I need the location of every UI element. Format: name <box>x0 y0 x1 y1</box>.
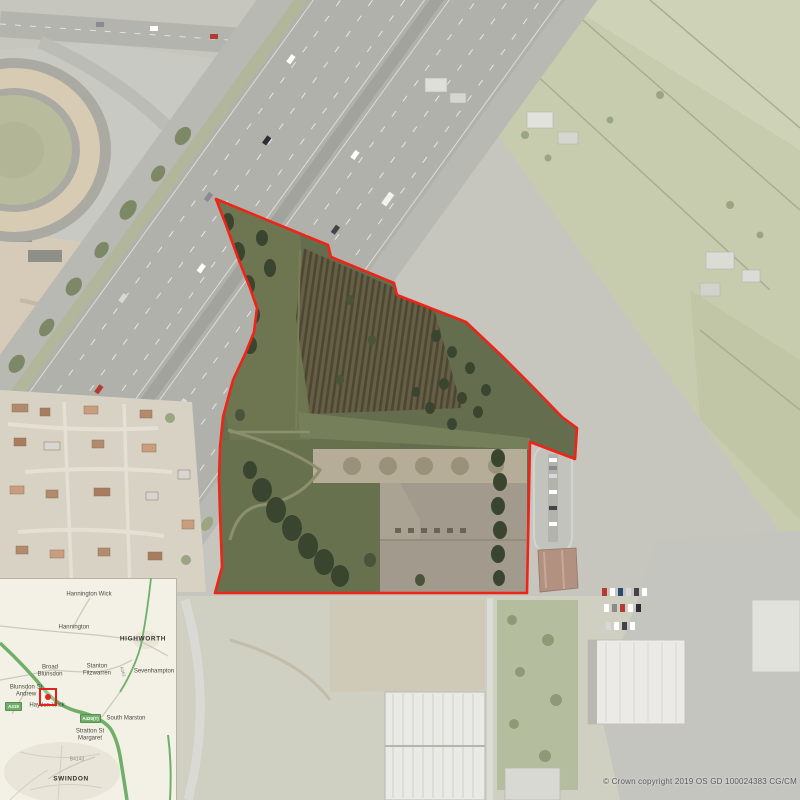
label-stanton-fitzwarren: Stanton Fitzwarren <box>75 663 119 676</box>
marker-dot <box>45 694 51 700</box>
housing-estate <box>0 390 206 592</box>
copyright-text: © Crown copyright 2019 OS GD 100024383 C… <box>603 777 797 786</box>
label-sevenhampton: Sevenhampton <box>124 669 184 676</box>
label-broad-blunsdon: Broad Blunsdon <box>33 664 67 677</box>
hotel-carpark <box>534 444 578 592</box>
label-hannington: Hannington <box>44 625 104 632</box>
site-plan-image: Hannington Wick Hannington HIGHWORTH Bro… <box>0 0 800 800</box>
location-marker <box>39 688 57 706</box>
label-south-marston: South Marston <box>98 716 154 723</box>
label-highworth: HIGHWORTH <box>108 635 178 642</box>
badge-a419: A419 <box>5 702 22 711</box>
label-hannington-wick: Hannington Wick <box>65 592 113 599</box>
label-b4143: B4143 <box>62 757 92 763</box>
label-swindon: SWINDON <box>41 775 101 782</box>
label-stratton-st-margaret: Stratton St Margaret <box>70 728 110 741</box>
